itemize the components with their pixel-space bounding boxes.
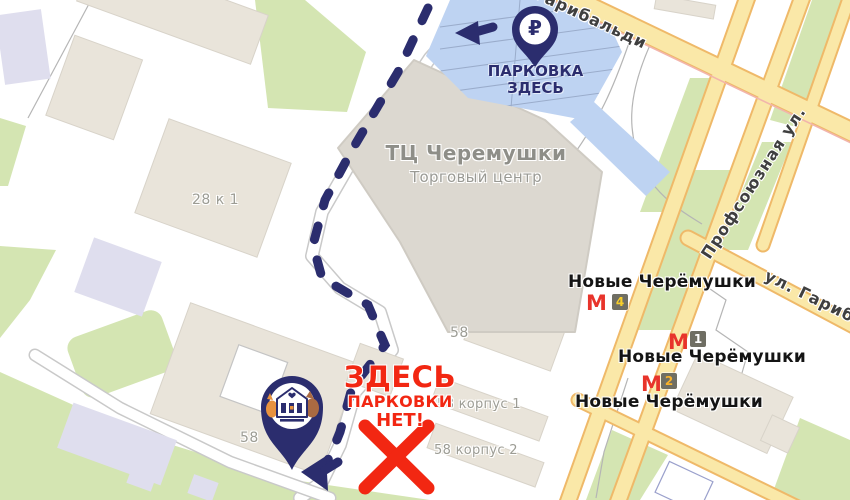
no-parking-line2: ПАРКОВКИ [338, 393, 462, 411]
metro-station-1-name: Новые Черёмушки [618, 347, 806, 367]
parking-here-line2: ЗДЕСЬ [478, 80, 593, 97]
no-parking-cross [365, 426, 428, 488]
parking-here-line1: ПАРКОВКА [478, 63, 593, 80]
building-label-58-center: 58 [450, 325, 469, 341]
metro-exit-badge-4: 4 [612, 294, 628, 310]
building-label-58-left: 58 [240, 430, 259, 446]
no-parking-line3: НЕТ! [338, 411, 462, 431]
no-parking-line1: ЗДЕСЬ [338, 362, 462, 393]
metro-exit-badge-2: 2 [661, 373, 677, 389]
ruble-icon: ₽ [523, 16, 547, 40]
metro-exit-badge-1: 1 [690, 331, 706, 347]
map-container: ₽ ПАРКОВКА ЗДЕСЬ ТЦ Черемушки Торговый ц… [0, 0, 850, 500]
building-label-58k2: 58 корпус 2 [434, 443, 518, 458]
mall-title: ТЦ Черемушки [366, 141, 586, 165]
metro-icon: М [641, 374, 662, 394]
building-label-28k1: 28 к 1 [192, 192, 239, 208]
no-parking-label: ЗДЕСЬ ПАРКОВКИ НЕТ! [338, 362, 462, 431]
metro-station-4-name: Новые Черёмушки [568, 272, 756, 292]
metro-icon: М [586, 293, 607, 313]
mall-subtitle: Торговый центр [366, 168, 586, 186]
metro-station-2-name: Новые Черёмушки [575, 392, 763, 412]
parking-here-label: ПАРКОВКА ЗДЕСЬ [478, 63, 593, 97]
